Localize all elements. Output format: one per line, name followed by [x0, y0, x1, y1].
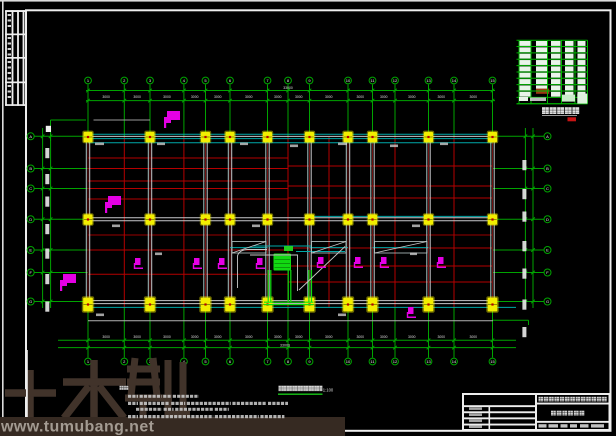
- svg-text:3000: 3000: [274, 335, 282, 339]
- svg-text:13: 13: [426, 78, 431, 83]
- svg-text:3000: 3000: [163, 335, 171, 339]
- svg-text:3000: 3000: [214, 95, 222, 99]
- svg-text:15: 15: [490, 78, 495, 83]
- svg-text:3000: 3000: [163, 95, 171, 99]
- svg-text:3000: 3000: [274, 95, 282, 99]
- svg-text:33000: 33000: [280, 344, 290, 348]
- svg-text:E: E: [29, 248, 32, 253]
- svg-text:3000: 3000: [102, 335, 110, 339]
- svg-text:3000: 3000: [356, 335, 364, 339]
- svg-text:3000: 3000: [356, 95, 364, 99]
- svg-text:A: A: [29, 134, 32, 139]
- svg-text:3000: 3000: [408, 335, 416, 339]
- svg-text:C: C: [546, 186, 549, 191]
- svg-text:3000: 3000: [469, 95, 477, 99]
- svg-text:3000: 3000: [380, 95, 388, 99]
- svg-text:13: 13: [426, 359, 431, 364]
- svg-text:3000: 3000: [214, 335, 222, 339]
- svg-text:10: 10: [346, 359, 351, 364]
- svg-text:B: B: [546, 166, 549, 171]
- svg-text:12: 12: [393, 78, 398, 83]
- svg-text:G: G: [546, 299, 549, 304]
- svg-text:B: B: [29, 166, 32, 171]
- svg-text:D: D: [546, 217, 549, 222]
- svg-text:D: D: [29, 217, 32, 222]
- svg-text:3000: 3000: [245, 335, 253, 339]
- svg-text:14: 14: [452, 78, 457, 83]
- svg-text:3000: 3000: [437, 335, 445, 339]
- svg-text:3000: 3000: [408, 95, 416, 99]
- svg-text:3000: 3000: [469, 335, 477, 339]
- svg-text:3000: 3000: [325, 95, 333, 99]
- svg-text:3000: 3000: [325, 335, 333, 339]
- svg-text:1:100: 1:100: [323, 387, 334, 392]
- svg-text:3000: 3000: [295, 95, 303, 99]
- svg-text:A: A: [546, 134, 549, 139]
- svg-text:G: G: [29, 299, 32, 304]
- svg-text:C: C: [29, 186, 32, 191]
- svg-text:33000: 33000: [283, 86, 293, 90]
- svg-text:E: E: [546, 248, 549, 253]
- svg-text:3000: 3000: [437, 95, 445, 99]
- svg-text:3000: 3000: [295, 335, 303, 339]
- svg-text:14: 14: [452, 359, 457, 364]
- svg-text:15: 15: [490, 359, 495, 364]
- svg-text:3000: 3000: [133, 335, 141, 339]
- svg-text:3000: 3000: [102, 95, 110, 99]
- svg-text:3000: 3000: [133, 95, 141, 99]
- svg-text:3000: 3000: [191, 335, 199, 339]
- svg-text:12: 12: [393, 359, 398, 364]
- svg-text:www.tumubang.net: www.tumubang.net: [0, 419, 155, 436]
- svg-text:3000: 3000: [380, 335, 388, 339]
- svg-text:10: 10: [346, 78, 351, 83]
- svg-text:3000: 3000: [191, 95, 199, 99]
- svg-text:3000: 3000: [245, 95, 253, 99]
